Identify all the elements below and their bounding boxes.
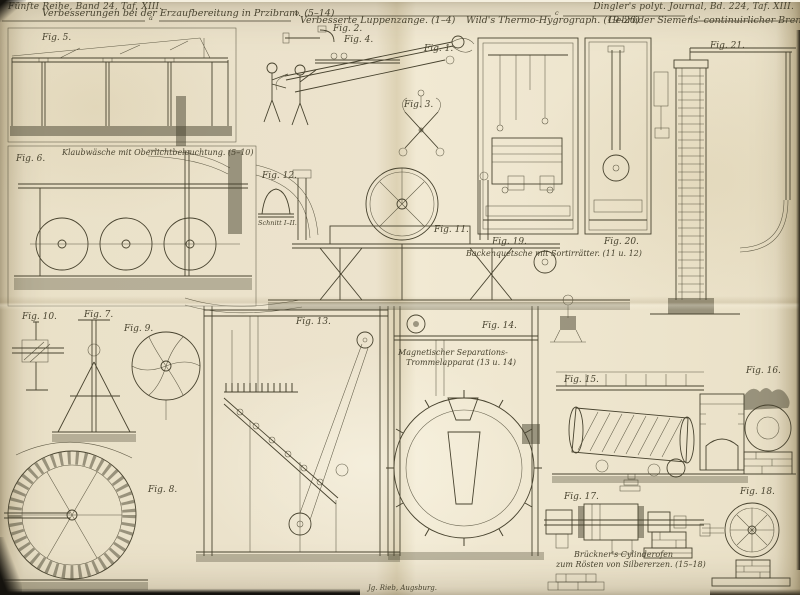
figure-label-5: Fig. 5. — [42, 34, 71, 43]
figure-label-6: Fig. 6. — [16, 155, 45, 164]
fig5-drawing — [8, 28, 236, 142]
caption-klaubwaesche: Klaubwäsche mit Oberlichtbeleuchtung. (5… — [62, 149, 254, 157]
figure-label-10: Fig. 10. — [22, 313, 57, 322]
fig20-drawing — [585, 38, 651, 234]
fig7-drawing — [52, 320, 136, 442]
fig10-drawing — [12, 322, 64, 390]
fig21-drawing — [650, 48, 796, 314]
figure-label-17: Fig. 17. — [564, 493, 599, 502]
figure-label-1: Fig. 1. — [424, 45, 453, 54]
fig12-drawing — [258, 189, 294, 217]
printer-mark: Jg. Rieb, Augsburg. — [368, 585, 437, 592]
figure-label-11: Fig. 11. — [434, 226, 469, 235]
fig13-drawing — [196, 306, 400, 562]
figure-label-15: Fig. 15. — [564, 376, 599, 385]
brick-steps-drawing — [548, 574, 604, 590]
duct-drawing — [176, 96, 186, 146]
caption-brueckner-line2: zum Rösten von Silbererzen. (15–18) — [556, 561, 706, 569]
figure-label-20: Fig. 20. — [604, 238, 639, 247]
fig16-drawing — [738, 388, 796, 474]
journal-reference: Dingler's polyt. Journal, Bd. 224, Taf. … — [593, 3, 794, 12]
section-title-erzaufbereitung: Verbesserungen bei der Erzaufbereitung i… — [42, 9, 335, 19]
scan-edge-bottom — [0, 587, 360, 595]
caption-schnitt: Schnitt I–II. — [258, 220, 297, 227]
caption-separator-line1: Magnetischer Separations- — [398, 349, 508, 357]
figure-label-12: Fig. 12. — [262, 172, 297, 181]
section-title-brennapparat: Gebrüder Siemens' continuirlicher Brenna… — [608, 16, 800, 26]
scan-corner-bottom-left — [0, 537, 22, 595]
fig8-drawing — [4, 442, 148, 590]
fig11-drawing — [268, 168, 630, 310]
figure-label-14: Fig. 14. — [482, 322, 517, 331]
fig14-drawing — [386, 306, 544, 560]
engraving-plate: Fünfte Reihe, Band 24, Taf. XIII. Dingle… — [0, 0, 800, 595]
figure-label-16: Fig. 16. — [746, 367, 781, 376]
fig9-drawing — [132, 332, 200, 420]
figure-label-7: Fig. 7. — [84, 311, 113, 320]
fig15-drawing — [552, 372, 748, 483]
figure-label-19: Fig. 19. — [492, 238, 527, 247]
fig17-drawing — [544, 474, 704, 558]
caption-backenquetsche: Backenquetsche mit Sortirrätter. (11 u. … — [466, 250, 642, 258]
scan-corner-bottom-right — [710, 589, 800, 595]
figure-label-2: Fig. 2. — [333, 25, 362, 34]
figure-label-18: Fig. 18. — [740, 488, 775, 497]
section-title-luppenzange: Verbesserte Luppenzange. (1–4) — [300, 16, 455, 26]
figure-label-9: Fig. 9. — [124, 325, 153, 334]
figure-label-4: Fig. 4. — [344, 36, 373, 45]
figure-label-21: Fig. 21. — [710, 42, 745, 51]
caption-separator-line2: Trommelapparat (13 u. 14) — [406, 359, 516, 367]
caption-brueckner-line1: Brückner's Cylinderofen — [574, 551, 673, 559]
figure-label-13: Fig. 13. — [296, 318, 331, 327]
figure-label-8: Fig. 8. — [148, 486, 177, 495]
horizontal-fold-crease — [0, 296, 800, 310]
figure-label-3: Fig. 3. — [404, 101, 433, 110]
fig19-drawing — [478, 38, 578, 234]
fig18-drawing — [700, 503, 790, 586]
